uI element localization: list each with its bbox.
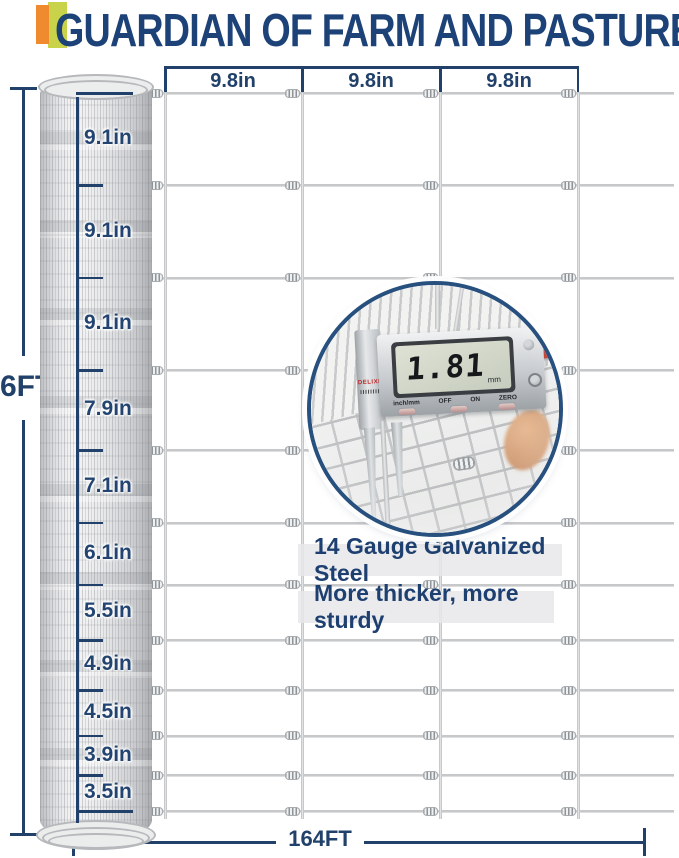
length-dimension-line [364,841,644,844]
wire-knot-icon [285,807,300,816]
row-spacing-label: 9.1in [84,126,132,150]
caliper-inset-photo: DELIXI 1.81 mm inch/mm OFF ON ZERO [307,281,563,537]
wire-knot-icon [285,273,300,282]
fence-vertical-wire [301,93,304,819]
wire-knot-icon [423,89,438,98]
page-title: GUARDIAN OF FARM AND PASTURE [55,3,679,57]
row-dimension-tick [76,522,103,525]
column-spacing-label: 9.8in [210,70,256,93]
wire-knot-icon [423,731,438,740]
wire-knot-icon [423,181,438,190]
row-dimension-tick [76,92,133,95]
column-dimension-tick [577,66,580,92]
column-dimension-tick [301,66,304,92]
wire-knot-icon [285,580,300,589]
row-dimension-tick [76,184,103,187]
row-dimension-tick [76,774,103,777]
row-spacing-label: 4.5in [84,700,132,724]
wire-knot-icon [561,366,576,375]
row-spacing-label: 7.1in [84,474,132,498]
wire-knot-icon [561,686,576,695]
fence-horizontal-wire [148,810,674,812]
row-spacing-label: 9.1in [84,311,132,335]
wire-knot-icon [285,518,300,527]
wire-knot-icon [285,686,300,695]
roll-top-coil [44,80,148,100]
inset-vignette [311,285,559,533]
fence-horizontal-wire [148,639,674,641]
wire-knot-icon [285,446,300,455]
wire-knot-icon [561,89,576,98]
height-dimension-tick [10,87,37,90]
roll-bottom-coil [48,833,144,849]
column-dimension-tick [439,66,442,92]
wire-knot-icon [285,636,300,645]
wire-knot-icon [561,771,576,780]
wire-knot-icon [561,181,576,190]
row-dimension-tick [76,369,103,372]
row-spacing-label: 3.9in [84,743,132,767]
row-dimension-tick [76,277,103,280]
fence-vertical-wire [577,93,580,819]
row-dimension-tick [76,735,103,738]
height-dimension-line [22,90,25,356]
column-dimension-line [165,66,579,69]
product-infographic: GUARDIAN OF FARM AND PASTURE 9.8in 9.8in… [0,0,679,858]
wire-knot-icon [561,580,576,589]
wire-knot-icon [561,446,576,455]
length-label: 164FT [276,826,364,852]
wire-knot-icon [423,807,438,816]
wire-knot-icon [285,366,300,375]
wire-knot-icon [561,636,576,645]
wire-knot-icon [423,686,438,695]
accent-bar-orange [36,5,49,44]
row-dimension-line [76,97,79,823]
fence-horizontal-wire [148,689,674,691]
row-spacing-label: 3.5in [84,780,132,804]
fence-horizontal-wire [148,92,674,94]
wire-knot-icon [561,273,576,282]
wire-knot-icon [561,518,576,527]
feature-text-sturdy: More thicker, more sturdy [298,591,554,623]
column-spacing-label: 9.8in [486,70,532,93]
height-dimension-tick [10,833,37,836]
row-dimension-tick [76,689,103,692]
wire-knot-icon [561,807,576,816]
caliper-beam-ticks [557,344,563,356]
feature-text-gauge: 14 Gauge Galvanized Steel [298,544,562,576]
height-dimension-line [22,420,25,834]
fence-horizontal-wire [148,774,674,776]
wire-knot-icon [423,636,438,645]
wire-knot-icon [285,181,300,190]
fence-horizontal-wire [148,184,674,186]
row-spacing-label: 7.9in [84,397,132,421]
fence-horizontal-wire [148,735,674,737]
wire-knot-icon [285,771,300,780]
wire-knot-icon [285,89,300,98]
column-spacing-label: 9.8in [348,70,394,93]
length-dimension-tick [643,828,646,856]
row-spacing-label: 6.1in [84,541,132,565]
row-dimension-tick [76,449,103,452]
fence-vertical-wire [164,93,167,819]
fence-roll [40,78,152,840]
column-dimension-tick [164,66,167,92]
wire-knot-icon [285,731,300,740]
row-dimension-tick [76,810,133,813]
wire-knot-icon [423,771,438,780]
fence-horizontal-wire [148,277,674,279]
row-spacing-label: 5.5in [84,599,132,623]
row-spacing-label: 9.1in [84,219,132,243]
row-spacing-label: 4.9in [84,652,132,676]
row-dimension-tick [76,639,103,642]
wire-knot-icon [561,731,576,740]
row-dimension-tick [76,584,103,587]
